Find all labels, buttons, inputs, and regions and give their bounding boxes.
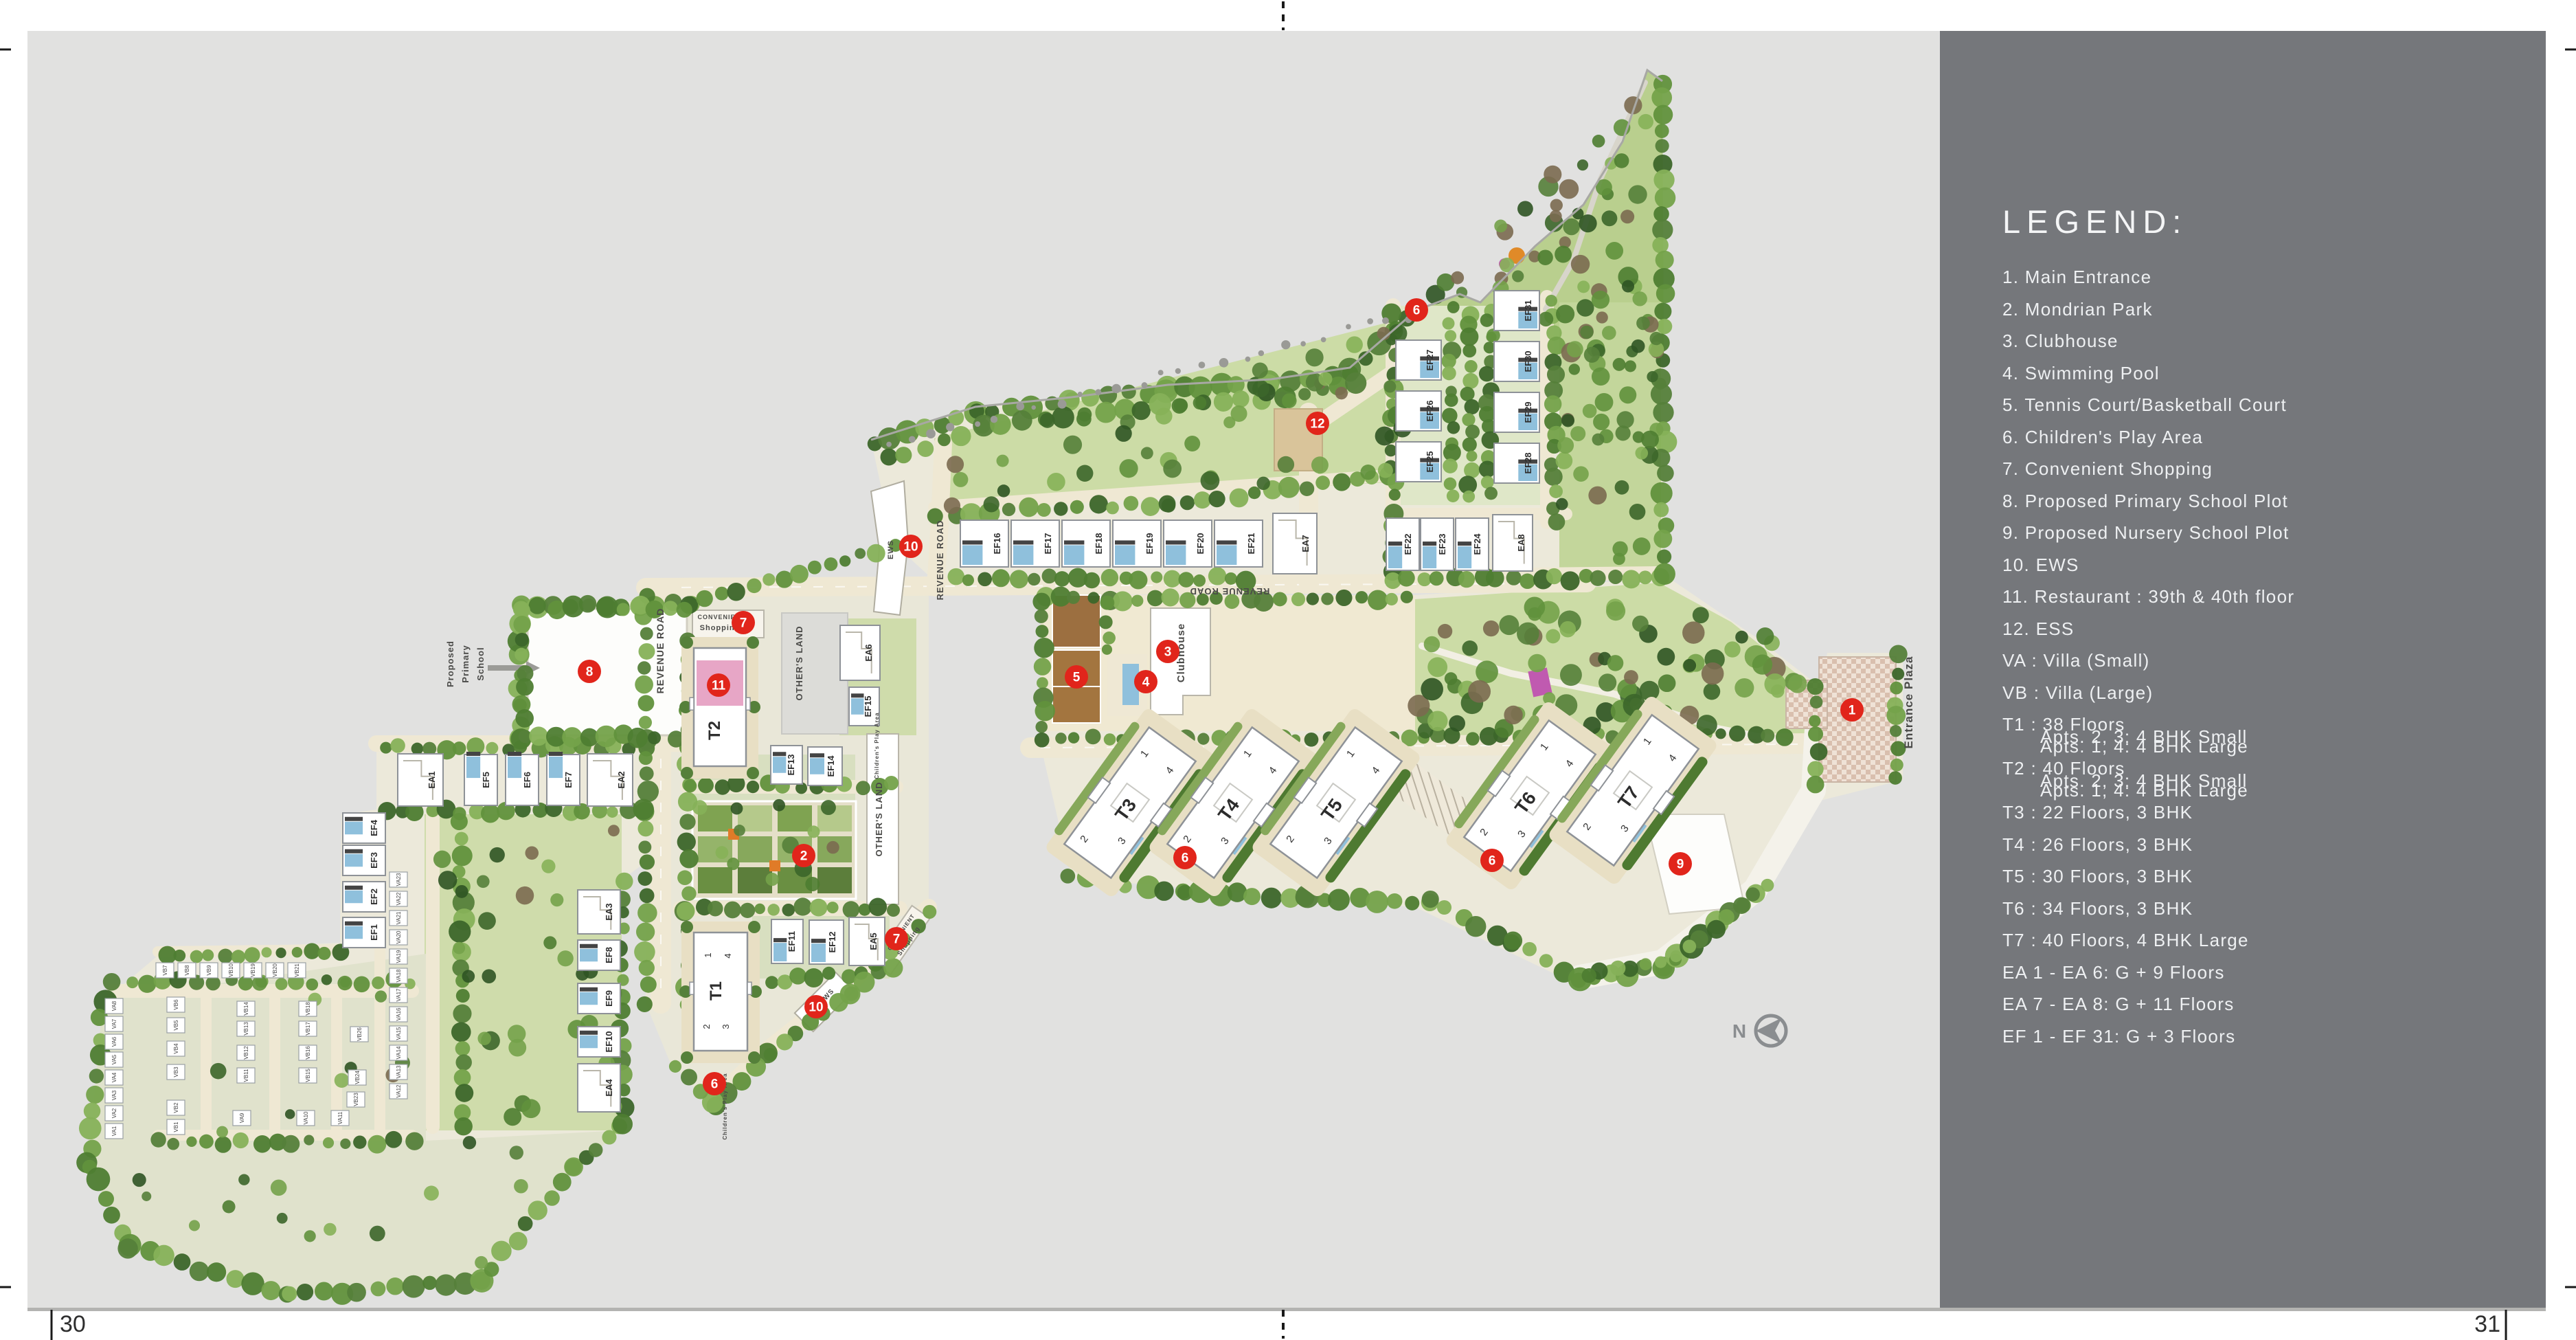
villa-VA10: VA10 xyxy=(297,1110,315,1126)
marker-6: 6 xyxy=(703,1072,726,1095)
building-EF29: EF29 xyxy=(1494,392,1539,432)
svg-text:VB21: VB21 xyxy=(294,963,300,977)
marker-12: 12 xyxy=(1306,412,1329,435)
building-EF19: EF19 xyxy=(1113,520,1161,567)
svg-text:EA1: EA1 xyxy=(427,771,437,788)
building-EF6: EF6 xyxy=(506,752,539,805)
villa-VA4: VA4 xyxy=(105,1070,123,1085)
villa-VB3: VB3 xyxy=(167,1064,185,1080)
svg-text:EA5: EA5 xyxy=(868,933,879,950)
svg-text:VB20: VB20 xyxy=(272,963,278,977)
svg-text:VA9: VA9 xyxy=(239,1113,245,1123)
map-label-10: Primary xyxy=(460,645,471,682)
legend-item-7: 7. Convenient Shopping xyxy=(2002,458,2213,480)
svg-text:EF26: EF26 xyxy=(1425,400,1435,421)
building-EF14: EF14 xyxy=(808,747,842,785)
svg-text:EF30: EF30 xyxy=(1523,350,1533,372)
svg-text:VB7: VB7 xyxy=(162,965,168,976)
map-label-4: OTHER'S LAND xyxy=(874,782,884,857)
svg-text:7: 7 xyxy=(740,616,747,631)
villa-VB1: VB1 xyxy=(167,1119,185,1135)
north-label: N xyxy=(1732,1020,1746,1042)
svg-text:2: 2 xyxy=(701,1024,712,1029)
villa-VA9: VA9 xyxy=(233,1110,251,1126)
villa-VB16: VB16 xyxy=(299,1045,317,1060)
building-EF23: EF23 xyxy=(1421,518,1454,570)
villa-VB4: VB4 xyxy=(167,1041,185,1056)
svg-text:EF1: EF1 xyxy=(369,924,379,941)
svg-text:EF19: EF19 xyxy=(1144,533,1155,554)
svg-text:EF14: EF14 xyxy=(826,755,836,777)
villa-VA13: VA13 xyxy=(389,1064,407,1080)
villa-VB15: VB15 xyxy=(299,1068,317,1083)
svg-text:VB19: VB19 xyxy=(250,963,256,977)
svg-text:4: 4 xyxy=(1142,675,1150,690)
svg-text:6: 6 xyxy=(1489,854,1496,869)
building-EF1: EF1 xyxy=(343,917,385,948)
marker-5: 5 xyxy=(1065,665,1088,689)
villa-VB26: VB26 xyxy=(350,1027,368,1042)
svg-text:VA7: VA7 xyxy=(111,1018,117,1029)
building-EF28: EF28 xyxy=(1494,443,1539,483)
svg-text:VA20: VA20 xyxy=(396,930,402,944)
svg-text:EF29: EF29 xyxy=(1523,401,1533,423)
legend-item-8: 8. Proposed Primary School Plot xyxy=(2002,491,2288,512)
map-label-11: School xyxy=(475,647,486,680)
svg-text:VB9: VB9 xyxy=(206,965,212,976)
svg-text:VA15: VA15 xyxy=(396,1027,402,1040)
svg-text:VB2: VB2 xyxy=(173,1102,179,1113)
svg-text:EA3: EA3 xyxy=(604,903,614,920)
svg-text:VA5: VA5 xyxy=(111,1054,117,1064)
building-EF30: EF30 xyxy=(1494,342,1539,381)
building-EF12: EF12 xyxy=(809,920,844,964)
svg-text:EF5: EF5 xyxy=(481,772,491,788)
marker-8: 8 xyxy=(578,660,601,683)
svg-text:EF4: EF4 xyxy=(369,819,379,836)
svg-text:5: 5 xyxy=(1073,671,1081,685)
svg-text:VA11: VA11 xyxy=(337,1111,343,1124)
villa-VA12: VA12 xyxy=(389,1084,407,1099)
villa-VA8: VA8 xyxy=(105,998,123,1014)
villa-VA19: VA19 xyxy=(389,949,407,964)
svg-text:4: 4 xyxy=(723,953,733,958)
villa-VA2: VA2 xyxy=(105,1106,123,1121)
svg-text:1: 1 xyxy=(703,952,713,957)
legend-item-16-sub-2: Apts. 2, 3: 4 BHK Small xyxy=(2040,770,2248,792)
marker-9: 9 xyxy=(1669,852,1692,875)
svg-text:1: 1 xyxy=(1849,704,1856,718)
svg-text:VB17: VB17 xyxy=(305,1022,311,1036)
svg-text:12: 12 xyxy=(1310,417,1324,432)
villa-VA7: VA7 xyxy=(105,1016,123,1031)
svg-text:7: 7 xyxy=(893,933,901,947)
north-arrow: N xyxy=(1732,1016,1786,1046)
building-EF24: EF24 xyxy=(1456,518,1489,570)
map-label-2: REVENUE ROAD xyxy=(1190,586,1270,596)
svg-text:EA8: EA8 xyxy=(1516,534,1526,551)
svg-text:10: 10 xyxy=(809,1001,823,1015)
svg-text:EF18: EF18 xyxy=(1094,533,1104,554)
marker-10: 10 xyxy=(899,535,923,558)
svg-text:2: 2 xyxy=(800,849,808,864)
svg-text:EF11: EF11 xyxy=(787,931,797,952)
building-EF21: EF21 xyxy=(1214,520,1263,567)
building-EA7: EA7 xyxy=(1273,513,1317,574)
svg-text:VB1: VB1 xyxy=(173,1121,179,1132)
building-EF2: EF2 xyxy=(343,882,385,912)
building-EA1: EA1 xyxy=(398,754,443,806)
svg-text:VB6: VB6 xyxy=(173,999,179,1010)
villa-VB17: VB17 xyxy=(299,1021,317,1036)
building-EA5: EA5 xyxy=(849,917,885,965)
marker-1: 1 xyxy=(1840,698,1864,722)
legend-item-12: 12. ESS xyxy=(2002,618,2075,640)
svg-text:EF31: EF31 xyxy=(1523,300,1533,321)
svg-text:VB3: VB3 xyxy=(173,1067,179,1077)
legend-title: LEGEND: xyxy=(2002,203,2187,241)
svg-text:VB26: VB26 xyxy=(357,1027,363,1041)
svg-text:VA4: VA4 xyxy=(111,1072,117,1082)
svg-text:EF13: EF13 xyxy=(786,754,796,775)
svg-text:VA14: VA14 xyxy=(396,1046,402,1060)
building-EF27: EF27 xyxy=(1396,340,1441,380)
svg-text:VA1: VA1 xyxy=(111,1126,117,1136)
marker-6: 6 xyxy=(1173,846,1197,869)
svg-text:EF12: EF12 xyxy=(827,931,837,952)
villa-VB8: VB8 xyxy=(178,963,196,978)
svg-text:VB23: VB23 xyxy=(353,1093,359,1106)
svg-text:VA10: VA10 xyxy=(303,1111,309,1125)
svg-text:EF15: EF15 xyxy=(863,695,873,717)
villa-VA16: VA16 xyxy=(389,1007,407,1022)
legend-item-15-sub-2: Apts. 2, 3: 4 BHK Small xyxy=(2040,726,2248,748)
map-label-0: REVENUE ROAD xyxy=(655,608,666,694)
svg-text:VB12: VB12 xyxy=(243,1046,249,1060)
svg-text:VA12: VA12 xyxy=(396,1084,402,1098)
svg-text:EF3: EF3 xyxy=(369,852,379,869)
svg-text:EF10: EF10 xyxy=(604,1031,614,1052)
building-EF18: EF18 xyxy=(1062,520,1110,567)
svg-text:3: 3 xyxy=(721,1024,731,1029)
svg-text:VB13: VB13 xyxy=(243,1022,249,1036)
building-EF31: EF31 xyxy=(1494,291,1539,331)
svg-text:VA18: VA18 xyxy=(396,969,402,983)
villa-VB21: VB21 xyxy=(288,963,306,978)
villa-VA18: VA18 xyxy=(389,968,407,983)
building-EF16: EF16 xyxy=(960,520,1008,567)
legend-item-6: 6. Children's Play Area xyxy=(2002,427,2203,448)
building-EF17: EF17 xyxy=(1011,520,1059,567)
legend-item-4: 4. Swimming Pool xyxy=(2002,363,2160,384)
marker-7: 7 xyxy=(732,611,755,634)
svg-text:9: 9 xyxy=(1677,858,1684,872)
marker-4: 4 xyxy=(1134,670,1157,693)
villa-VB23: VB23 xyxy=(347,1092,365,1107)
villa-VB20: VB20 xyxy=(266,963,284,978)
svg-text:VA17: VA17 xyxy=(396,988,402,1002)
marker-6: 6 xyxy=(1405,298,1428,322)
tower-T1: T11423 xyxy=(679,921,762,1064)
villa-VB13: VB13 xyxy=(237,1021,255,1036)
legend-item-3: 3. Clubhouse xyxy=(2002,331,2119,352)
legend-item-23: EA 7 - EA 8: G + 11 Floors xyxy=(2002,994,2235,1015)
svg-text:VA22: VA22 xyxy=(396,892,402,906)
building-EF9: EF9 xyxy=(578,983,620,1014)
svg-text:VA16: VA16 xyxy=(396,1007,402,1021)
marker-2: 2 xyxy=(792,844,815,867)
svg-text:3: 3 xyxy=(1164,645,1172,660)
building-EF8: EF8 xyxy=(578,940,620,970)
building-EF25: EF25 xyxy=(1396,442,1441,482)
building-EF22: EF22 xyxy=(1386,518,1419,570)
svg-text:EF16: EF16 xyxy=(992,533,1002,554)
map-label-9: Proposed xyxy=(445,640,455,687)
villa-VA21: VA21 xyxy=(389,911,407,926)
svg-text:VA23: VA23 xyxy=(396,873,402,886)
svg-text:VA19: VA19 xyxy=(396,950,402,963)
legend-item-5: 5. Tennis Court/Basketball Court xyxy=(2002,394,2287,416)
svg-text:EA4: EA4 xyxy=(604,1079,614,1097)
svg-text:11: 11 xyxy=(712,679,726,693)
building-EA3: EA3 xyxy=(578,890,620,934)
svg-text:EF21: EF21 xyxy=(1246,533,1256,554)
legend-item-11: 11. Restaurant : 39th & 40th floor xyxy=(2002,586,2294,607)
villa-VA14: VA14 xyxy=(389,1045,407,1060)
svg-text:VA21: VA21 xyxy=(396,911,402,925)
legend-item-21: T7 : 40 Floors, 4 BHK Large xyxy=(2002,930,2249,951)
svg-text:EF27: EF27 xyxy=(1425,349,1435,370)
map-label-16: Children's Play Area xyxy=(874,712,880,779)
marker-6: 6 xyxy=(1480,849,1504,872)
svg-text:VB10: VB10 xyxy=(228,963,234,977)
legend-item-17: T3 : 22 Floors, 3 BHK xyxy=(2002,802,2193,823)
map-label-3: OTHER'S LAND xyxy=(794,626,804,701)
svg-text:10: 10 xyxy=(903,540,918,555)
villa-VA6: VA6 xyxy=(105,1034,123,1049)
svg-text:VB15: VB15 xyxy=(305,1069,311,1082)
svg-text:VA3: VA3 xyxy=(111,1090,117,1100)
building-EF26: EF26 xyxy=(1396,391,1441,431)
building-EA6: EA6 xyxy=(840,625,880,680)
villa-VB24: VB24 xyxy=(348,1070,366,1085)
legend-item-19: T5 : 30 Floors, 3 BHK xyxy=(2002,866,2193,887)
svg-text:8: 8 xyxy=(586,665,594,680)
svg-text:EF25: EF25 xyxy=(1425,451,1435,472)
svg-text:VA8: VA8 xyxy=(111,1001,117,1011)
marker-10: 10 xyxy=(804,995,828,1018)
svg-text:EA2: EA2 xyxy=(616,771,626,788)
building-EF10: EF10 xyxy=(578,1027,620,1057)
villa-VA23: VA23 xyxy=(389,872,407,887)
map-label-5: Entrance Plaza xyxy=(1902,656,1915,749)
building-EA4: EA4 xyxy=(578,1064,620,1112)
villa-VB18: VB18 xyxy=(299,1001,317,1016)
svg-text:VB24: VB24 xyxy=(354,1071,361,1084)
svg-text:VB11: VB11 xyxy=(243,1069,249,1082)
villa-VA20: VA20 xyxy=(389,930,407,945)
svg-text:VA6: VA6 xyxy=(111,1036,117,1047)
svg-text:VB4: VB4 xyxy=(173,1043,179,1054)
svg-text:EF8: EF8 xyxy=(604,947,614,963)
brochure-spread: { "page": { "left_page_number": "30", "r… xyxy=(0,0,2576,1340)
villa-VB5: VB5 xyxy=(167,1018,185,1033)
legend-item-9: 9. Proposed Nursery School Plot xyxy=(2002,522,2290,544)
villa-VB12: VB12 xyxy=(237,1045,255,1060)
svg-text:VB18: VB18 xyxy=(305,1002,311,1016)
marker-11: 11 xyxy=(707,673,730,697)
building-EF11: EF11 xyxy=(771,919,803,963)
villa-VB7: VB7 xyxy=(156,963,174,978)
legend-item-2: 2. Mondrian Park xyxy=(2002,299,2153,320)
svg-text:6: 6 xyxy=(1413,304,1421,318)
villa-VA1: VA1 xyxy=(105,1124,123,1139)
villa-VB2: VB2 xyxy=(167,1100,185,1115)
building-EF13: EF13 xyxy=(771,746,802,784)
building-EA8: EA8 xyxy=(1493,515,1533,571)
svg-text:EA6: EA6 xyxy=(863,644,874,661)
building-EF4: EF4 xyxy=(343,813,385,843)
legend-item-18: T4 : 26 Floors, 3 BHK xyxy=(2002,834,2193,856)
legend-item-20: T6 : 34 Floors, 3 BHK xyxy=(2002,898,2193,919)
villa-VA5: VA5 xyxy=(105,1052,123,1067)
building-EF20: EF20 xyxy=(1164,520,1212,567)
svg-text:T2: T2 xyxy=(705,721,724,740)
svg-text:EF24: EF24 xyxy=(1472,533,1482,555)
svg-text:6: 6 xyxy=(1182,851,1189,866)
svg-text:VB5: VB5 xyxy=(173,1020,179,1031)
svg-text:VB14: VB14 xyxy=(243,1002,249,1016)
villa-VA17: VA17 xyxy=(389,987,407,1003)
legend-panel: LEGEND: 1. Main Entrance2. Mondrian Park… xyxy=(1940,31,2546,1308)
legend-item-13: VA : Villa (Small) xyxy=(2002,650,2150,671)
villa-VB10: VB10 xyxy=(222,963,240,978)
building-EF7: EF7 xyxy=(547,752,580,805)
villa-VB14: VB14 xyxy=(237,1001,255,1016)
villa-VA15: VA15 xyxy=(389,1026,407,1041)
legend-item-10: 10. EWS xyxy=(2002,555,2079,576)
svg-text:VA13: VA13 xyxy=(396,1065,402,1079)
villa-VB6: VB6 xyxy=(167,997,185,1012)
legend-item-22: EA 1 - EA 6: G + 9 Floors xyxy=(2002,962,2225,983)
villa-VB11: VB11 xyxy=(237,1068,255,1083)
marker-7: 7 xyxy=(885,927,908,950)
building-EA2: EA2 xyxy=(587,754,633,806)
svg-text:T1: T1 xyxy=(707,981,725,1001)
svg-text:EF17: EF17 xyxy=(1043,533,1053,554)
villa-VA22: VA22 xyxy=(389,891,407,906)
svg-text:EF22: EF22 xyxy=(1403,533,1413,555)
svg-text:6: 6 xyxy=(711,1077,719,1092)
page-number-right: 31 xyxy=(2445,1311,2500,1338)
legend-item-24: EF 1 - EF 31: G + 3 Floors xyxy=(2002,1026,2235,1047)
villa-VA11: VA11 xyxy=(331,1110,349,1126)
svg-text:EF6: EF6 xyxy=(522,772,532,788)
svg-text:EA7: EA7 xyxy=(1300,535,1311,552)
svg-text:VB16: VB16 xyxy=(305,1046,311,1060)
building-EF3: EF3 xyxy=(343,845,385,875)
svg-text:EF9: EF9 xyxy=(604,990,614,1007)
villa-VB9: VB9 xyxy=(200,963,218,978)
building-EF5: EF5 xyxy=(464,752,497,805)
legend-item-14: VB : Villa (Large) xyxy=(2002,682,2153,704)
svg-text:VB8: VB8 xyxy=(184,965,190,976)
svg-text:EF7: EF7 xyxy=(563,772,574,788)
svg-text:EF20: EF20 xyxy=(1195,533,1206,554)
map-label-1: REVENUE ROAD xyxy=(935,520,945,601)
marker-3: 3 xyxy=(1156,640,1179,663)
svg-text:EF2: EF2 xyxy=(369,889,379,905)
tower-T2: T2 xyxy=(679,636,760,779)
svg-text:VA2: VA2 xyxy=(111,1108,117,1118)
villa-VA3: VA3 xyxy=(105,1088,123,1103)
villa-VB19: VB19 xyxy=(244,963,262,978)
page-number-left: 30 xyxy=(60,1311,86,1338)
svg-text:EF28: EF28 xyxy=(1523,452,1533,473)
map-label-7: EWS xyxy=(887,540,895,559)
legend-item-1: 1. Main Entrance xyxy=(2002,267,2151,288)
svg-text:EF23: EF23 xyxy=(1437,533,1447,555)
